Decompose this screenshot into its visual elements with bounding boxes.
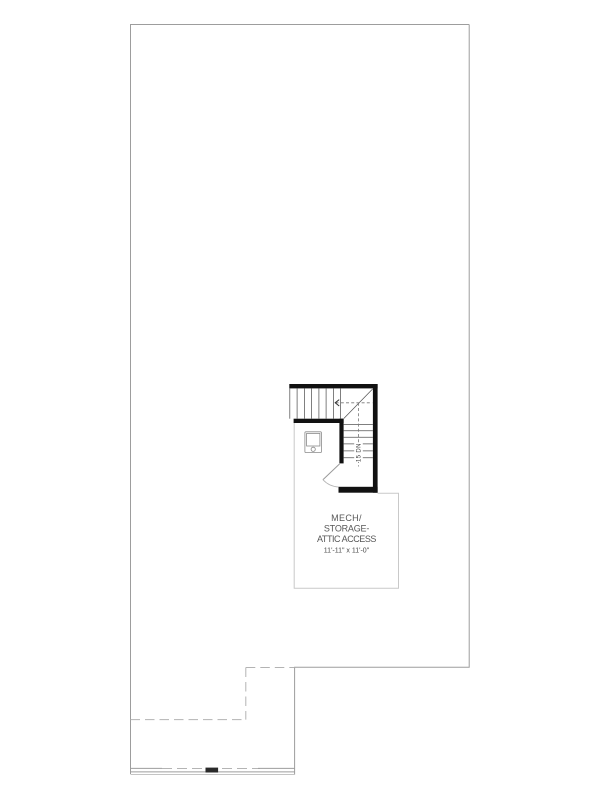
svg-text:15 DN: 15 DN [356, 443, 362, 462]
svg-text:MECH/: MECH/ [331, 513, 362, 523]
svg-text:STORAGE-: STORAGE- [324, 524, 369, 534]
svg-text:ATTIC ACCESS: ATTIC ACCESS [317, 534, 376, 544]
svg-text:11'-11" x 11'-0": 11'-11" x 11'-0" [324, 547, 370, 554]
